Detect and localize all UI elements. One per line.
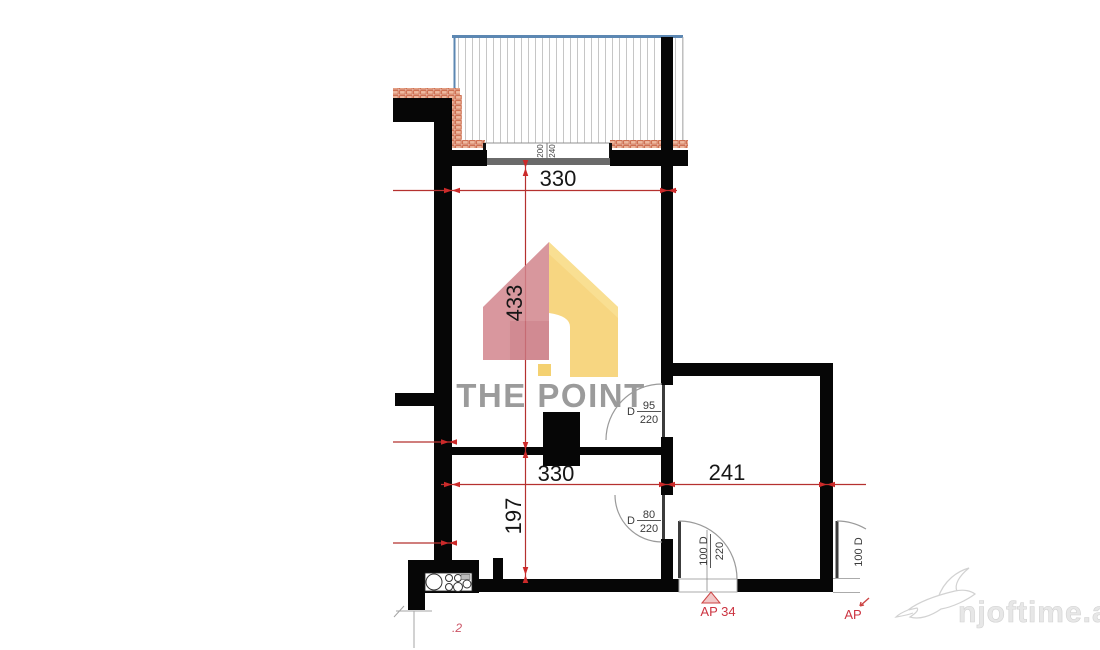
terrace-window: 200 240 xyxy=(483,143,612,165)
brand-watermark: THE POINT xyxy=(456,377,646,414)
wall-left-stub xyxy=(395,393,435,406)
neighbor-apartment-label: AP xyxy=(844,607,861,622)
floor-plan-canvas: 200 240 xyxy=(0,0,1100,650)
dim-height-lower: 197 xyxy=(501,498,526,535)
entry-height: 220 xyxy=(714,542,726,560)
d95-letter: D xyxy=(627,406,635,418)
window-dim-right: 240 xyxy=(548,144,557,158)
neighbor-marker-arrow xyxy=(860,598,869,606)
d95-width: 95 xyxy=(643,400,655,412)
kitchen-counter xyxy=(394,560,479,648)
neighbor-size: 100 D xyxy=(853,537,865,566)
logo-door-shade xyxy=(510,321,549,360)
wall-bottom-right xyxy=(737,579,833,592)
dim-right-width: 241 xyxy=(709,460,746,485)
d80-height: 220 xyxy=(640,523,658,535)
window-dim-left: 200 xyxy=(536,144,545,158)
site-name: njoftime.al xyxy=(958,596,1100,629)
entry-size: 100 D xyxy=(698,536,710,565)
plan-note: .2 xyxy=(452,621,462,635)
column xyxy=(543,412,580,466)
wall-right-room-top xyxy=(661,363,833,376)
wall-bottom-left xyxy=(474,579,680,592)
dim-inner-width: 330 xyxy=(538,461,575,486)
wall-top-left xyxy=(393,98,437,122)
wall-stub-lower xyxy=(661,542,673,579)
logo-small-square xyxy=(538,364,551,376)
dim-top-width: 330 xyxy=(540,166,577,191)
d80-letter: D xyxy=(627,515,635,527)
wall-middle-vertical xyxy=(661,37,673,383)
floor-plan-image: 200 240 xyxy=(0,0,1100,650)
dim-height-upper: 433 xyxy=(502,285,527,322)
window-sill xyxy=(487,158,610,165)
wall-kitchen-stub xyxy=(493,558,503,580)
extension-ticks xyxy=(394,606,432,648)
terrace-hatch xyxy=(455,37,683,144)
wall-left xyxy=(434,98,452,560)
wall-right xyxy=(820,363,833,592)
d80-width: 80 xyxy=(643,509,655,521)
wall-under-window-right xyxy=(610,150,688,166)
red-labels: AP 34 AP .2 xyxy=(452,592,869,635)
entry-apartment-label: AP 34 xyxy=(700,604,735,619)
wall-under-window-left xyxy=(436,150,487,166)
entry-marker-triangle xyxy=(702,592,720,603)
d95-height: 220 xyxy=(640,414,658,426)
site-watermark: njoftime.al xyxy=(896,568,1100,629)
